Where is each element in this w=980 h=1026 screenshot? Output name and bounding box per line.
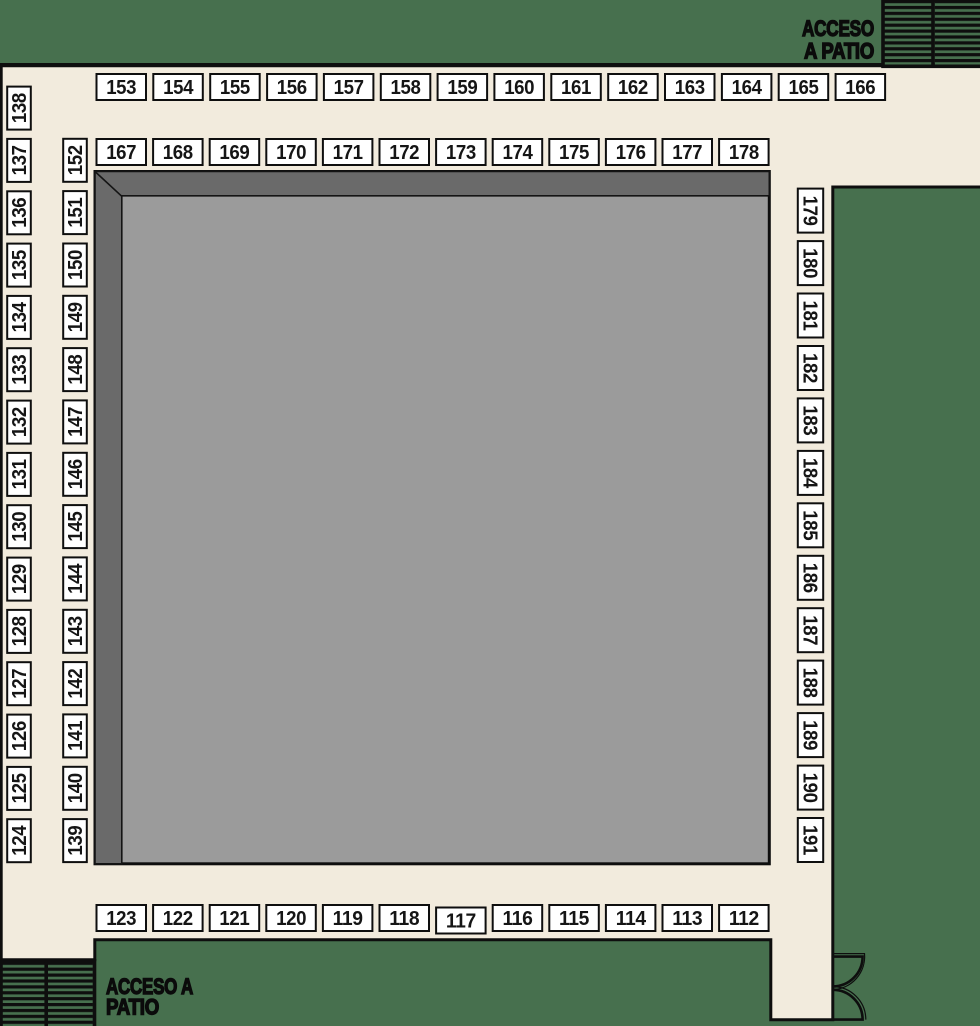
svg-text:177: 177 [672, 142, 702, 164]
svg-text:112: 112 [729, 908, 759, 930]
svg-text:140: 140 [65, 773, 87, 803]
svg-text:161: 161 [561, 77, 591, 99]
svg-text:A PATIO: A PATIO [804, 39, 874, 64]
svg-text:171: 171 [333, 142, 363, 164]
svg-text:184: 184 [798, 458, 820, 489]
svg-text:148: 148 [65, 354, 87, 384]
svg-text:183: 183 [798, 405, 820, 435]
svg-text:115: 115 [559, 908, 589, 930]
svg-text:190: 190 [798, 773, 820, 803]
svg-text:137: 137 [9, 145, 31, 175]
svg-text:123: 123 [106, 908, 136, 930]
svg-text:167: 167 [106, 142, 136, 164]
svg-text:139: 139 [65, 825, 87, 855]
svg-text:117: 117 [446, 911, 476, 933]
svg-text:133: 133 [9, 355, 31, 385]
svg-text:131: 131 [9, 459, 31, 489]
svg-text:PATIO: PATIO [106, 995, 159, 1020]
svg-text:187: 187 [798, 615, 820, 645]
svg-text:152: 152 [65, 145, 87, 175]
svg-text:153: 153 [106, 77, 136, 99]
svg-text:185: 185 [798, 510, 820, 540]
svg-text:141: 141 [65, 721, 87, 751]
svg-text:179: 179 [798, 196, 820, 226]
svg-text:165: 165 [789, 77, 819, 99]
svg-text:175: 175 [559, 142, 589, 164]
svg-text:181: 181 [798, 301, 820, 331]
svg-text:174: 174 [503, 142, 534, 164]
svg-text:191: 191 [798, 825, 820, 855]
svg-text:158: 158 [391, 77, 421, 99]
svg-text:125: 125 [9, 773, 31, 803]
svg-text:155: 155 [220, 77, 250, 99]
svg-text:146: 146 [65, 459, 87, 489]
svg-text:170: 170 [276, 142, 306, 164]
svg-text:129: 129 [9, 564, 31, 594]
svg-text:157: 157 [334, 77, 364, 99]
svg-text:143: 143 [65, 616, 87, 646]
svg-text:189: 189 [798, 720, 820, 750]
svg-text:178: 178 [729, 142, 759, 164]
svg-text:162: 162 [618, 77, 648, 99]
svg-text:126: 126 [9, 721, 31, 751]
svg-text:182: 182 [798, 353, 820, 383]
svg-text:128: 128 [9, 616, 31, 646]
svg-text:169: 169 [219, 142, 249, 164]
svg-text:154: 154 [163, 77, 194, 99]
svg-text:147: 147 [65, 407, 87, 437]
svg-text:159: 159 [447, 77, 477, 99]
svg-text:116: 116 [503, 908, 533, 930]
svg-text:113: 113 [672, 908, 702, 930]
svg-text:118: 118 [389, 908, 419, 930]
svg-text:127: 127 [9, 668, 31, 698]
svg-text:186: 186 [798, 563, 820, 593]
svg-text:173: 173 [446, 142, 476, 164]
svg-text:145: 145 [65, 511, 87, 541]
svg-text:121: 121 [219, 908, 249, 930]
svg-text:188: 188 [798, 668, 820, 698]
svg-text:163: 163 [675, 77, 705, 99]
svg-text:156: 156 [277, 77, 307, 99]
svg-text:151: 151 [65, 197, 87, 227]
svg-text:180: 180 [798, 248, 820, 278]
svg-text:149: 149 [65, 302, 87, 332]
svg-text:ACCESO: ACCESO [802, 16, 874, 41]
svg-text:160: 160 [504, 77, 534, 99]
svg-text:114: 114 [616, 908, 647, 930]
svg-text:134: 134 [9, 301, 31, 332]
svg-text:120: 120 [276, 908, 306, 930]
svg-text:130: 130 [9, 511, 31, 541]
svg-text:122: 122 [163, 908, 193, 930]
svg-text:135: 135 [9, 250, 31, 280]
svg-text:144: 144 [65, 563, 87, 594]
svg-text:142: 142 [65, 668, 87, 698]
svg-text:164: 164 [732, 77, 763, 99]
svg-text:166: 166 [845, 77, 875, 99]
svg-text:119: 119 [333, 908, 363, 930]
svg-text:150: 150 [65, 250, 87, 280]
svg-text:138: 138 [9, 93, 31, 123]
svg-text:124: 124 [9, 825, 31, 856]
svg-text:136: 136 [9, 198, 31, 228]
svg-text:168: 168 [163, 142, 193, 164]
svg-text:172: 172 [389, 142, 419, 164]
svg-text:132: 132 [9, 407, 31, 437]
svg-text:176: 176 [616, 142, 646, 164]
